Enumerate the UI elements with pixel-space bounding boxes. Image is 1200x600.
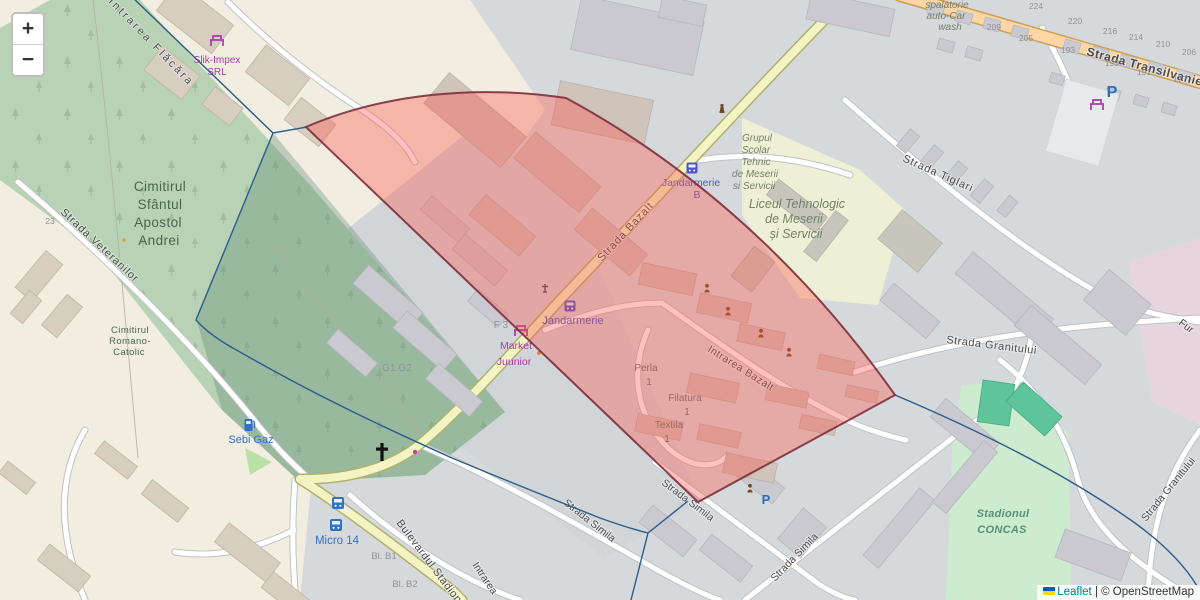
block-label: F 3	[494, 320, 509, 331]
block-label: G1.G2	[382, 363, 412, 374]
cemetery-label: Catolic	[113, 347, 145, 358]
house-number: 191	[1137, 67, 1151, 77]
attribution-bar: Leaflet | © OpenStreetMap	[1037, 585, 1200, 600]
cemetery-label: Cimitirul	[134, 179, 186, 194]
shop-label: Market	[500, 340, 532, 352]
house-number: 224	[1029, 1, 1043, 11]
openstreetmap-link[interactable]: © OpenStreetMap	[1101, 586, 1194, 598]
poi-dot	[413, 450, 417, 454]
block-label: Bl. B1	[371, 551, 396, 562]
leaflet-link[interactable]: Leaflet	[1057, 586, 1092, 598]
house-number: 206	[1182, 47, 1196, 57]
house-number: 216	[1103, 26, 1117, 36]
poi-label: spalatorie	[925, 0, 969, 11]
house-number: 193	[1105, 58, 1119, 68]
school-label: Scolar	[742, 145, 771, 156]
zoom-in-button[interactable]: +	[13, 14, 43, 45]
zoom-out-button[interactable]: −	[13, 45, 43, 75]
shop-label: Juunior	[497, 356, 532, 368]
poi-label: Sebi Gaz	[228, 434, 273, 446]
house-number: 23	[45, 216, 55, 226]
parking-icon: P	[762, 492, 771, 507]
bus-stop-icon	[687, 163, 698, 174]
poi-label: wash	[938, 22, 962, 33]
school-label: Grupul	[742, 133, 773, 144]
leaflet-map[interactable]: Intrarea Flăcăra Strada Veteranilor Stra…	[0, 0, 1200, 600]
house-number: 177	[1173, 74, 1187, 84]
house-number: 209	[987, 22, 1001, 32]
school-label: de Meserii	[732, 169, 779, 180]
cemetery-label: Romano-	[109, 336, 151, 347]
house-number: 193	[1061, 45, 1075, 55]
school-label: si Servicii	[733, 181, 776, 192]
cemetery-label: Apostol	[134, 215, 182, 230]
school-label: de Meserii	[765, 212, 824, 226]
poi-dot	[122, 238, 126, 242]
cemetery-label: Cimitirul	[111, 325, 149, 336]
school-label: Tehnic	[741, 157, 770, 168]
cemetery-label: Andrei	[138, 233, 179, 248]
block-label: Bl. B2	[392, 579, 417, 590]
school-label: și Servicii	[770, 227, 824, 241]
house-number: 214	[1129, 32, 1143, 42]
stadium-label: CONCAS	[977, 524, 1027, 536]
school-label: Liceul Tehnologic	[749, 197, 846, 211]
ukraine-flag-icon	[1043, 587, 1055, 595]
bus-stop-icon	[330, 519, 342, 531]
transit-label: Micro 14	[315, 535, 360, 547]
house-number: 220	[1068, 16, 1082, 26]
map-canvas: Intrarea Flăcăra Strada Veteranilor Stra…	[0, 0, 1200, 600]
house-number: 205	[1019, 33, 1033, 43]
stadium-label: Stadionul	[977, 508, 1030, 520]
attribution-separator: |	[1092, 586, 1101, 598]
house-number: 210	[1156, 39, 1170, 49]
cemetery-label: Sfântul	[138, 197, 183, 212]
zoom-control: + −	[11, 12, 45, 77]
shop-label: Slik-Impex	[194, 55, 241, 66]
parking-icon: P	[1107, 84, 1118, 101]
bus-stop-icon	[332, 497, 344, 509]
poi-label: auto-Car	[927, 11, 967, 22]
